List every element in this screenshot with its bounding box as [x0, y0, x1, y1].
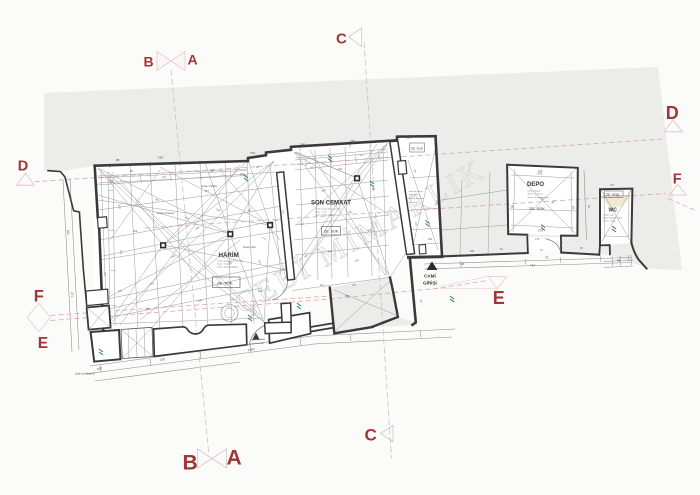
svg-text:218: 218 [158, 156, 163, 160]
svg-text:B: B [144, 54, 154, 70]
svg-text:734: 734 [530, 264, 535, 268]
svg-text:D: D [18, 159, 28, 175]
svg-text:ahşap direk: ahşap direk [243, 246, 257, 249]
svg-text:291: 291 [328, 250, 333, 253]
svg-text:C: C [336, 31, 347, 48]
svg-text:DEPO: DEPO [527, 182, 544, 188]
svg-text:B: B [183, 452, 198, 475]
svg-text:88: 88 [617, 259, 621, 263]
svg-text:ZE. SOK: ZE. SOK [217, 280, 233, 285]
svg-text:186: 186 [470, 250, 475, 253]
svg-text:tavan: ahşap bağdadi: tavan: ahşap bağdadi [217, 266, 238, 269]
svg-text:104: 104 [428, 238, 433, 241]
svg-text:tavan: ahşap: tavan: ahşap [603, 220, 616, 223]
svg-text:ZE. SOK: ZE. SOK [529, 206, 545, 211]
svg-text:162: 162 [66, 230, 70, 236]
svg-text:ZE. SOK: ZE. SOK [411, 147, 423, 151]
svg-text:taş söve: taş söve [409, 201, 418, 204]
svg-text:ZE. SOK: ZE. SOK [324, 230, 339, 234]
svg-text:C: C [365, 426, 377, 445]
svg-text:229: 229 [133, 230, 138, 233]
svg-text:D: D [666, 103, 679, 123]
svg-text:GİRİŞİ: GİRİŞİ [423, 280, 437, 286]
svg-text:duvar: fayans kapla: duvar: fayans kapla [603, 217, 623, 220]
svg-text:740: 740 [250, 151, 255, 155]
svg-text:zemin: şap: zemin: şap [603, 215, 614, 217]
svg-text:SON CEMAAT: SON CEMAAT [311, 201, 351, 207]
svg-text:siyah çini döşeme: siyah çini döşeme [75, 373, 95, 376]
svg-text:ahşap kirişleme: ahşap kirişleme [157, 212, 175, 215]
svg-text:271: 271 [70, 292, 74, 298]
svg-text:WC: WC [609, 208, 618, 214]
svg-text:75: 75 [545, 256, 549, 260]
svg-text:ZE. SOK: ZE. SOK [606, 193, 620, 197]
svg-text:mevcut ahşap: mevcut ahşap [409, 190, 423, 193]
svg-text:F: F [673, 172, 682, 188]
svg-text:ahşap mahfilin: ahşap mahfilin [201, 185, 218, 188]
svg-text:218: 218 [145, 308, 150, 311]
svg-text:278: 278 [160, 357, 166, 362]
svg-text:HARİM: HARİM [219, 252, 239, 259]
svg-text:tavan: ahşap kaplama: tavan: ahşap kaplama [528, 196, 550, 199]
svg-text:137: 137 [406, 136, 411, 140]
svg-text:A: A [227, 447, 242, 470]
svg-text:duvar: taş duvar: duvar: taş duvar [528, 193, 544, 196]
svg-text:E: E [493, 288, 505, 308]
svg-text:96: 96 [461, 262, 465, 266]
svg-text:özgün duvar izi: özgün duvar izi [409, 197, 424, 200]
svg-text:CAMİ: CAMİ [424, 273, 436, 279]
svg-text:103: 103 [97, 366, 103, 371]
svg-text:225: 225 [350, 139, 355, 143]
svg-text:zemin toprak: zemin toprak [528, 190, 541, 193]
svg-text:F: F [34, 288, 44, 306]
svg-text:279: 279 [538, 170, 543, 173]
svg-text:260: 260 [300, 143, 305, 147]
svg-text:A: A [188, 52, 198, 68]
svg-text:98: 98 [116, 158, 120, 162]
svg-text:zemin ahşap döşeme 1 kat: zemin ahşap döşeme 1 kat [315, 208, 342, 211]
svg-text:E: E [38, 335, 48, 352]
svg-text:415: 415 [258, 290, 263, 293]
svg-text:358: 358 [345, 295, 350, 298]
svg-text:duvar : sıva: duvar : sıva [315, 211, 327, 214]
svg-text:tavan: ahşap kaplama: tavan: ahşap kaplama [315, 214, 337, 217]
svg-text:167: 167 [118, 290, 123, 293]
svg-text:137: 137 [610, 184, 615, 187]
svg-text:kapı yeri: kapı yeri [409, 193, 418, 196]
